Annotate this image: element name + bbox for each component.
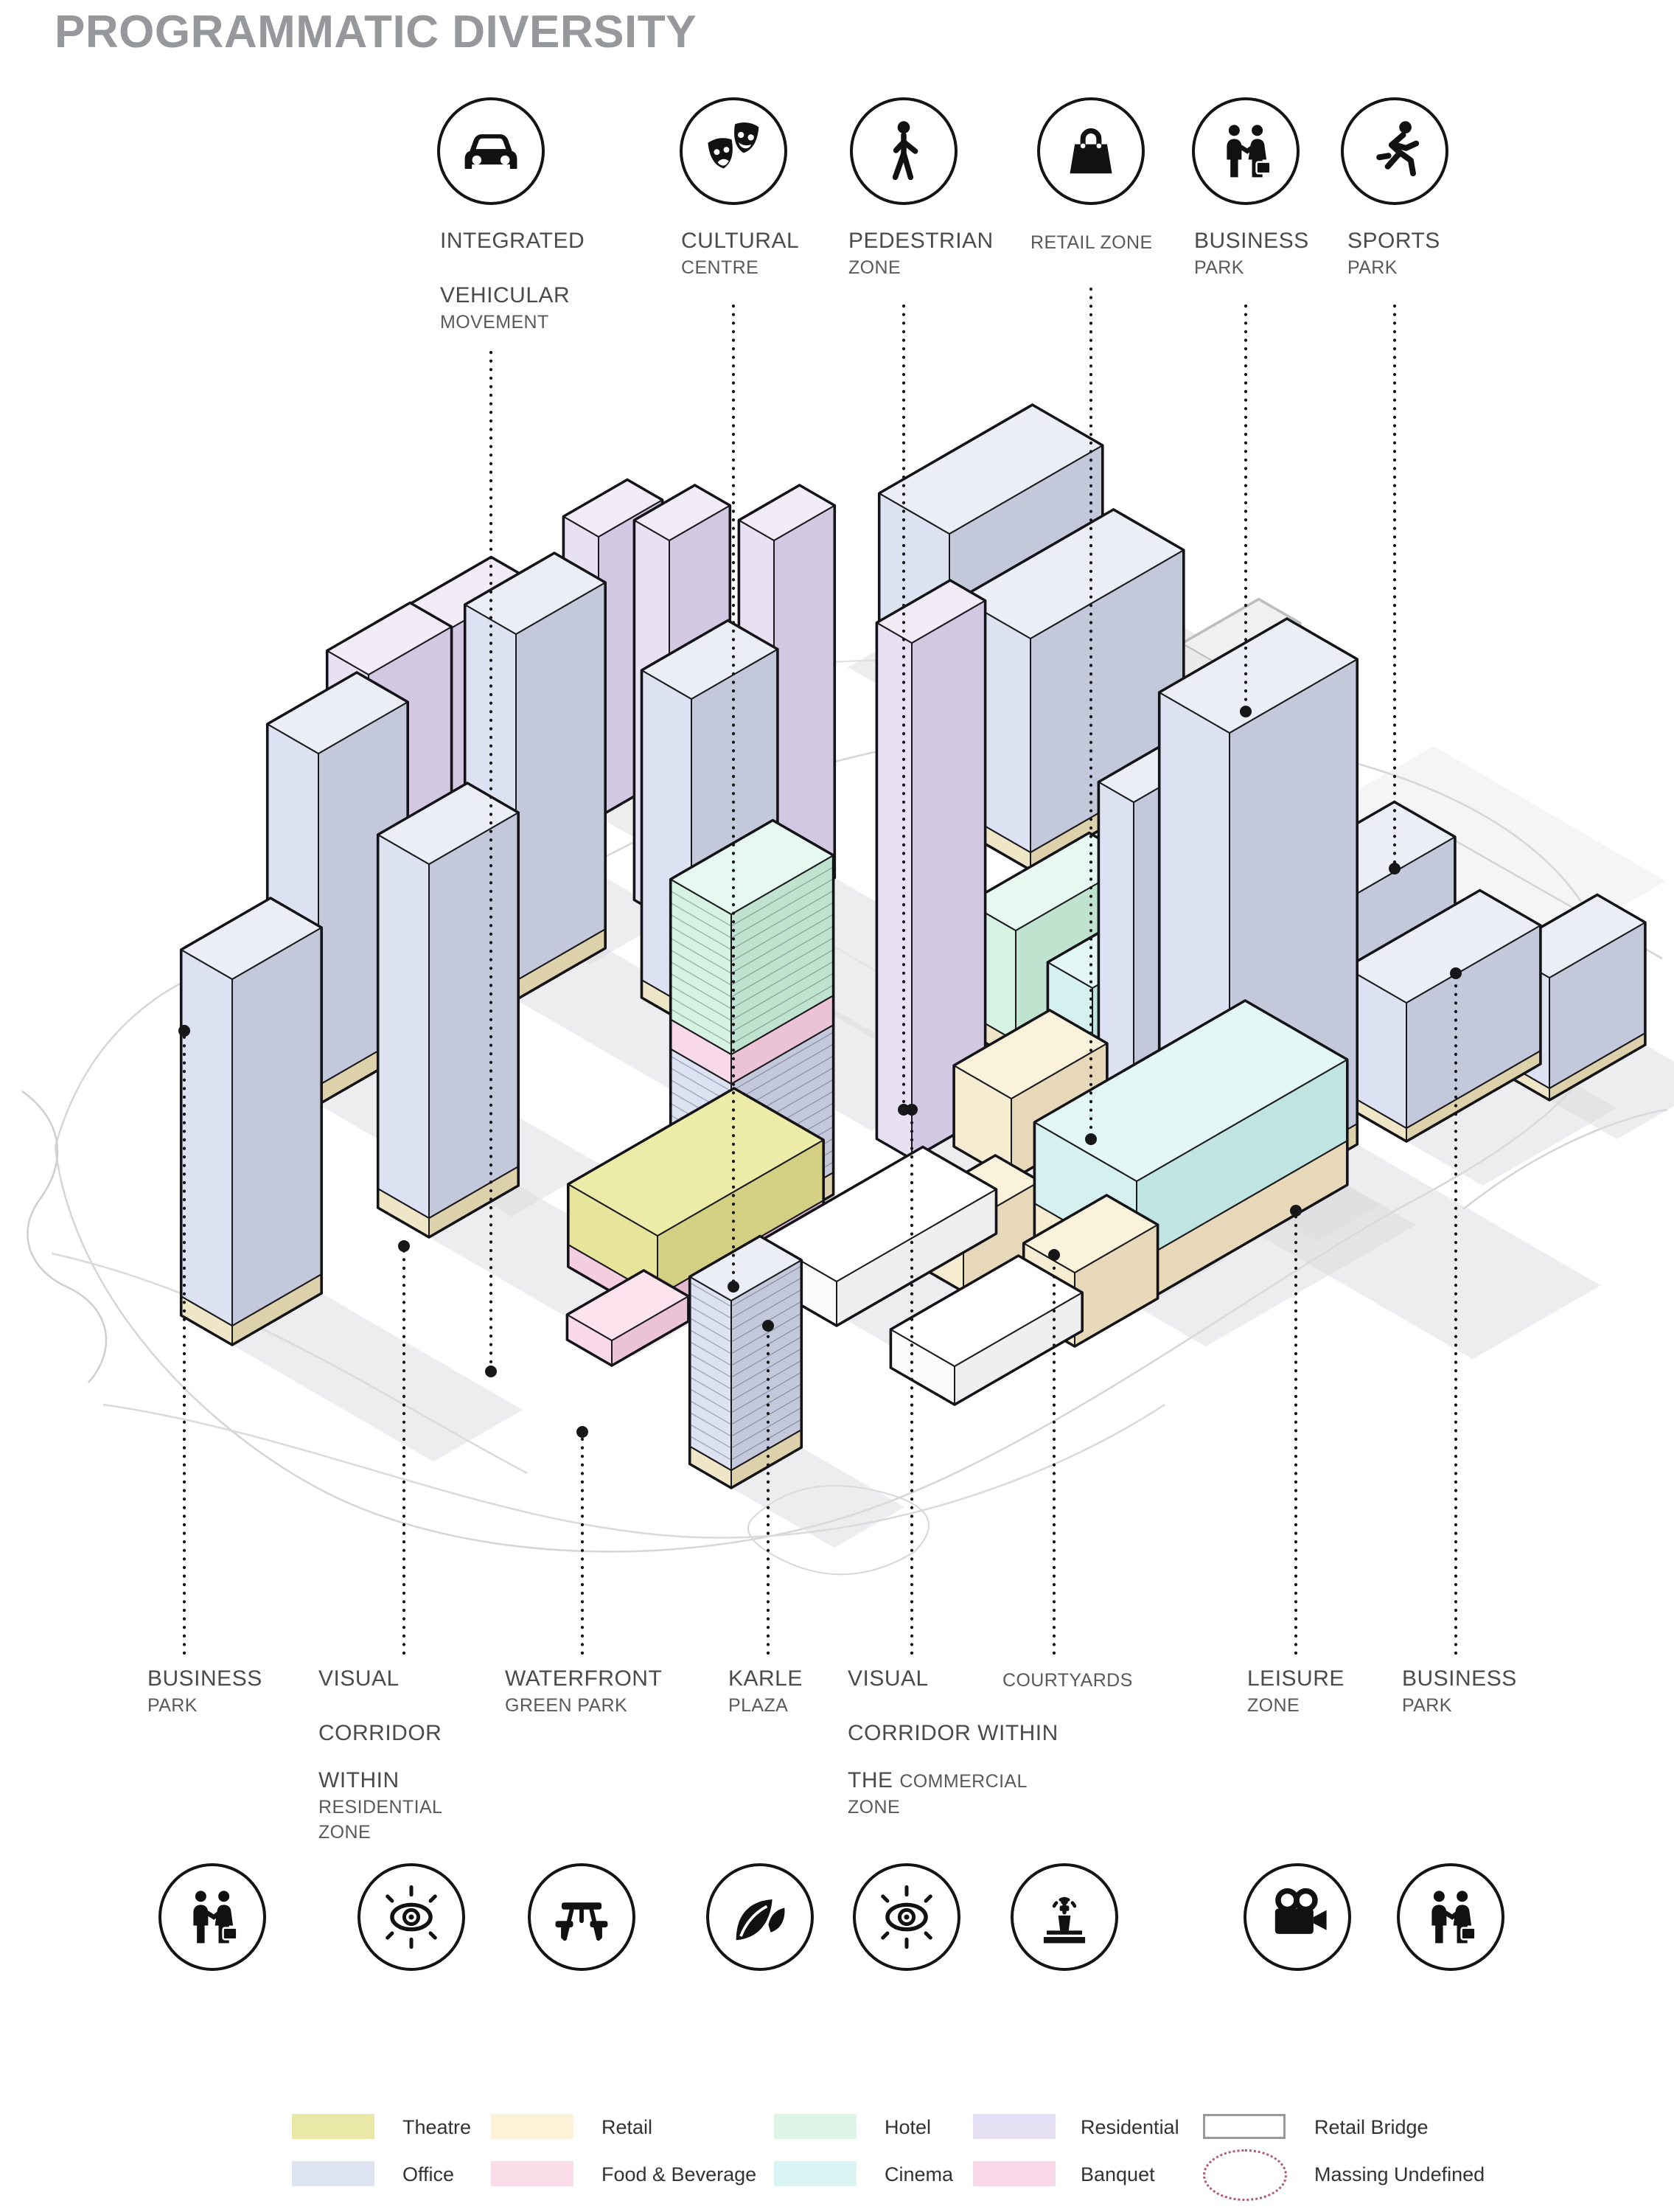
legend-label: Retail (601, 2116, 652, 2139)
leader-dot-leisure-zone (1290, 1205, 1302, 1217)
leader-dot-business-park-east (1450, 967, 1462, 979)
leader-dot-visual-corridor-residential (398, 1240, 410, 1252)
bottom-icon-green-park-icon (528, 1863, 635, 1971)
legend-swatch-theatre (292, 2114, 374, 2139)
top-icon-business-park-n (1192, 97, 1300, 205)
pedestrian-icon (867, 114, 941, 188)
legend-label: Theatre (402, 2116, 471, 2139)
business-people-icon (1414, 1880, 1488, 1954)
annotation-label-sports-park: SPORTSPARK (1347, 227, 1440, 280)
business-people-icon (1209, 114, 1283, 188)
bottom-icon-visual-corridor-icon-2 (853, 1863, 960, 1971)
annotation-label-business-park-n: BUSINESSPARK (1194, 227, 1309, 280)
bottom-icon-leisure-cinema-icon (1244, 1863, 1351, 1971)
legend-swatch-retail (491, 2114, 573, 2139)
eye-icon (374, 1880, 448, 1954)
leader-dot-business-park-n (1240, 706, 1252, 717)
annotation-label-visual-corridor-residential: VISUALCORRIDORWITHINRESIDENTIALZONE (318, 1665, 442, 1845)
annotation-label-business-park-east: BUSINESSPARK (1402, 1665, 1517, 1718)
bottom-icon-visual-corridor-icon-1 (358, 1863, 465, 1971)
legend-swatch-banquet (973, 2161, 1056, 2186)
legend-swatch-residential (973, 2114, 1056, 2139)
annotation-label-retail-zone: RETAIL ZONE (1030, 230, 1153, 255)
leader-dot-sports-park (1389, 863, 1401, 874)
annotation-label-karle-plaza: KARLEPLAZA (728, 1665, 803, 1718)
leader-dot-retail-zone (1085, 1133, 1097, 1145)
bottom-icon-plaza-leaf-icon (706, 1863, 814, 1971)
programmatic-diversity-poster: PROGRAMMATIC DIVERSITY INTEGRATEDVEHICUL… (0, 0, 1674, 2212)
annotation-label-integrated-vehicular-movement: INTEGRATEDVEHICULARMOVEMENT (440, 227, 585, 335)
legend-label: Cinema (885, 2163, 953, 2186)
annotation-label-business-park-west: BUSINESSPARK (147, 1665, 262, 1718)
legend-swatch-cinema (774, 2161, 857, 2186)
business-people-icon (175, 1880, 249, 1954)
leader-dot-cultural-centre (728, 1281, 739, 1293)
top-icon-cultural-centre (680, 97, 787, 205)
legend-label: Office (402, 2163, 454, 2186)
leader-dot-courtyards (1048, 1249, 1060, 1261)
leader-dot-integrated-vehicular-movement (485, 1366, 497, 1377)
legend-label: Residential (1081, 2116, 1179, 2139)
leader-dot-karle-plaza (762, 1320, 774, 1332)
picnic-table-icon (545, 1880, 618, 1954)
car-icon (454, 114, 528, 188)
top-icon-sports-park (1341, 97, 1448, 205)
eye-icon (870, 1880, 944, 1954)
legend-swatch-office (292, 2161, 374, 2186)
shopping-bag-icon (1054, 114, 1128, 188)
bottom-icon-courtyard-fountain-icon (1011, 1863, 1118, 1971)
legend-label: Food & Beverage (601, 2163, 756, 2186)
annotation-label-pedestrian-zone: PEDESTRIANZONE (848, 227, 994, 280)
leader-dot-waterfront-green-park (576, 1426, 588, 1438)
movie-camera-icon (1260, 1880, 1334, 1954)
runner-icon (1358, 114, 1431, 188)
annotation-label-courtyards: COURTYARDS (1002, 1668, 1133, 1693)
legend-swatch-massing-undefined (1203, 2149, 1287, 2201)
leader-dot-visual-corridor-commercial (906, 1104, 918, 1116)
top-icon-integrated-vehicular-movement (437, 97, 545, 205)
legend-label: Massing Undefined (1314, 2163, 1485, 2186)
annotation-label-waterfront-green-park: WATERFRONTGREEN PARK (505, 1665, 662, 1718)
legend-swatch-retail-bridge (1203, 2114, 1286, 2139)
building-office-tower-s (690, 1237, 802, 1489)
legend-swatch-food-beverage (491, 2161, 573, 2186)
leader-dot-business-park-west (178, 1025, 190, 1037)
legend-label: Retail Bridge (1314, 2116, 1429, 2139)
bottom-icon-business-park-icon (158, 1863, 266, 1971)
fountain-icon (1028, 1880, 1101, 1954)
top-icon-pedestrian-zone (850, 97, 958, 205)
legend-swatch-hotel (774, 2114, 857, 2139)
legend-label: Hotel (885, 2116, 931, 2139)
leaf-icon (723, 1880, 797, 1954)
top-icon-retail-zone (1037, 97, 1145, 205)
page-title: PROGRAMMATIC DIVERSITY (55, 6, 697, 58)
bottom-icon-business-park-icon-2 (1397, 1863, 1504, 1971)
annotation-label-cultural-centre: CULTURALCENTRE (681, 227, 799, 280)
theatre-masks-icon (697, 114, 770, 188)
building-office-tower-w-2 (378, 783, 519, 1237)
legend-label: Banquet (1081, 2163, 1155, 2186)
annotation-label-leisure-zone: LEISUREZONE (1247, 1665, 1345, 1718)
building-office-tower-w-1 (181, 898, 322, 1345)
